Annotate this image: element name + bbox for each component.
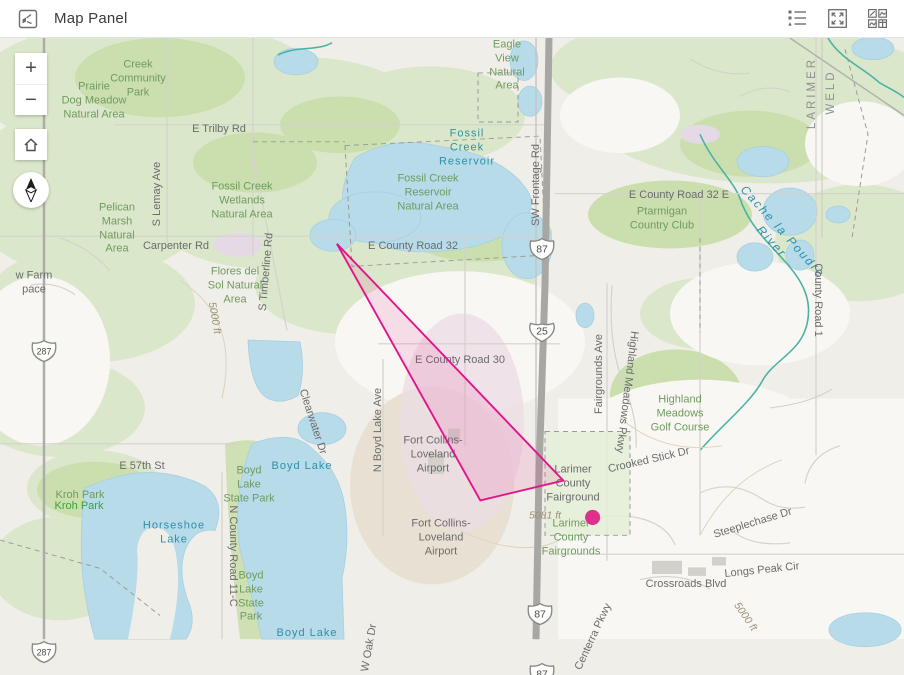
compass-button[interactable] [13,172,49,208]
map-panel-icon [18,9,38,29]
panel-title: Map Panel [54,10,128,27]
aoi-polygon[interactable] [337,244,563,501]
graphics-overlay [0,38,904,675]
widget-overview-button[interactable] [864,6,890,32]
north-arrow-icon [24,178,38,202]
zoom-out-button[interactable]: − [15,84,47,115]
location-dot[interactable] [585,510,600,525]
legend-button[interactable] [784,6,810,32]
legend-icon [788,9,807,28]
home-button[interactable] [15,129,47,160]
widget-overview-icon [868,9,887,28]
map-canvas[interactable]: Creek Community ParkPrairie Dog Meadow N… [0,38,904,675]
expand-button[interactable] [824,6,850,32]
zoom-in-button[interactable]: + [15,53,47,84]
home-icon [22,136,40,154]
expand-icon [828,9,847,28]
panel-header: Map Panel [0,0,904,38]
